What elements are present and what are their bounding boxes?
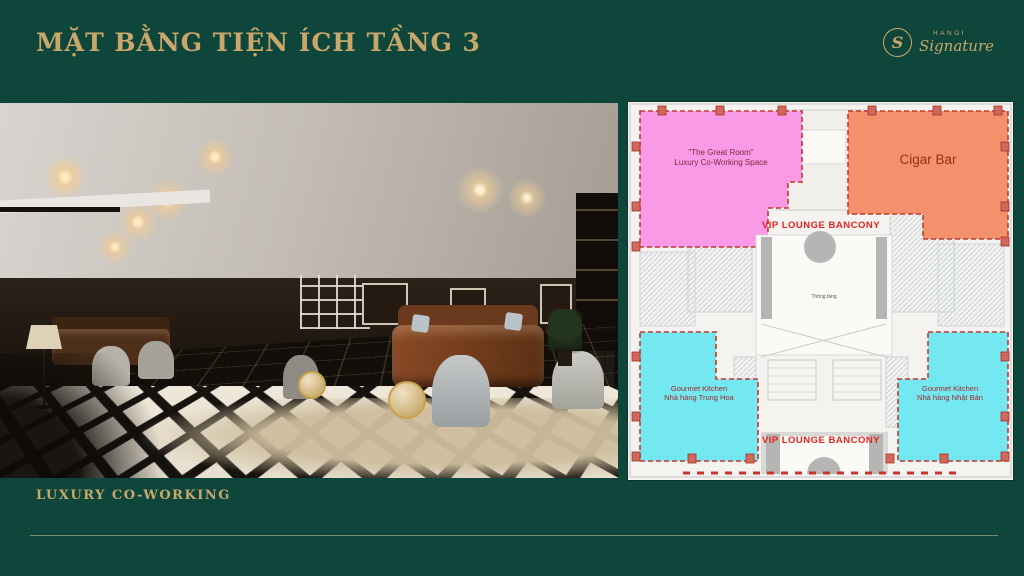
plant-pot (558, 351, 572, 366)
page-title: MẶT BẰNG TIỆN ÍCH TẦNG 3 (36, 28, 481, 57)
wing-armchair (432, 355, 490, 427)
great-room-line1: "The Great Room" (646, 148, 796, 158)
zone-label-cigar-bar: Cigar Bar (853, 152, 1003, 169)
vip-lounge-balcony-top-label: VIP LOUNGE BANCONY (746, 220, 896, 232)
brand-logo: S HANOI Signature (883, 28, 994, 57)
monogram-icon: S (883, 28, 912, 57)
potted-plant (548, 309, 582, 355)
atrium-note: Thông tầng (784, 294, 864, 300)
zone-label-gourmet-kitchen-japanese: Gourmet Kitchen Nhà hàng Nhật Bản (892, 384, 1008, 403)
gold-side-table (298, 371, 326, 399)
logo-brand: Signature (919, 39, 994, 54)
logo-text: HANOI Signature (919, 31, 994, 54)
zone-label-great-room: "The Great Room" Luxury Co-Working Space (646, 148, 796, 168)
sofa-pillow (411, 314, 430, 333)
slide-caption: LUXURY CO-WORKING (36, 488, 231, 503)
foreground-shadow (0, 353, 220, 478)
coworking-interior-photo (0, 103, 618, 478)
floor-lamp (26, 325, 62, 349)
window-wall (0, 207, 120, 306)
vip-lounge-balcony-bottom-label: VIP LOUNGE BANCONY (746, 435, 896, 447)
gourmet-kitchen-right-line2: Nhà hàng Nhật Bản (892, 393, 1008, 402)
floor-plan-panel: "The Great Room" Luxury Co-Working Space… (628, 102, 1013, 480)
footer-divider-line (30, 535, 998, 536)
great-room-line2: Luxury Co-Working Space (646, 158, 796, 168)
zone-label-gourmet-kitchen-chinese: Gourmet Kitchen Nhà hàng Trung Hoa (641, 384, 757, 403)
gold-side-table (388, 381, 426, 419)
open-shelving-unit (300, 275, 370, 329)
gourmet-kitchen-left-line1: Gourmet Kitchen (641, 384, 757, 393)
gourmet-kitchen-right-line1: Gourmet Kitchen (892, 384, 1008, 393)
sofa-pillow (504, 312, 523, 331)
gourmet-kitchen-left-line2: Nhà hàng Trung Hoa (641, 393, 757, 402)
